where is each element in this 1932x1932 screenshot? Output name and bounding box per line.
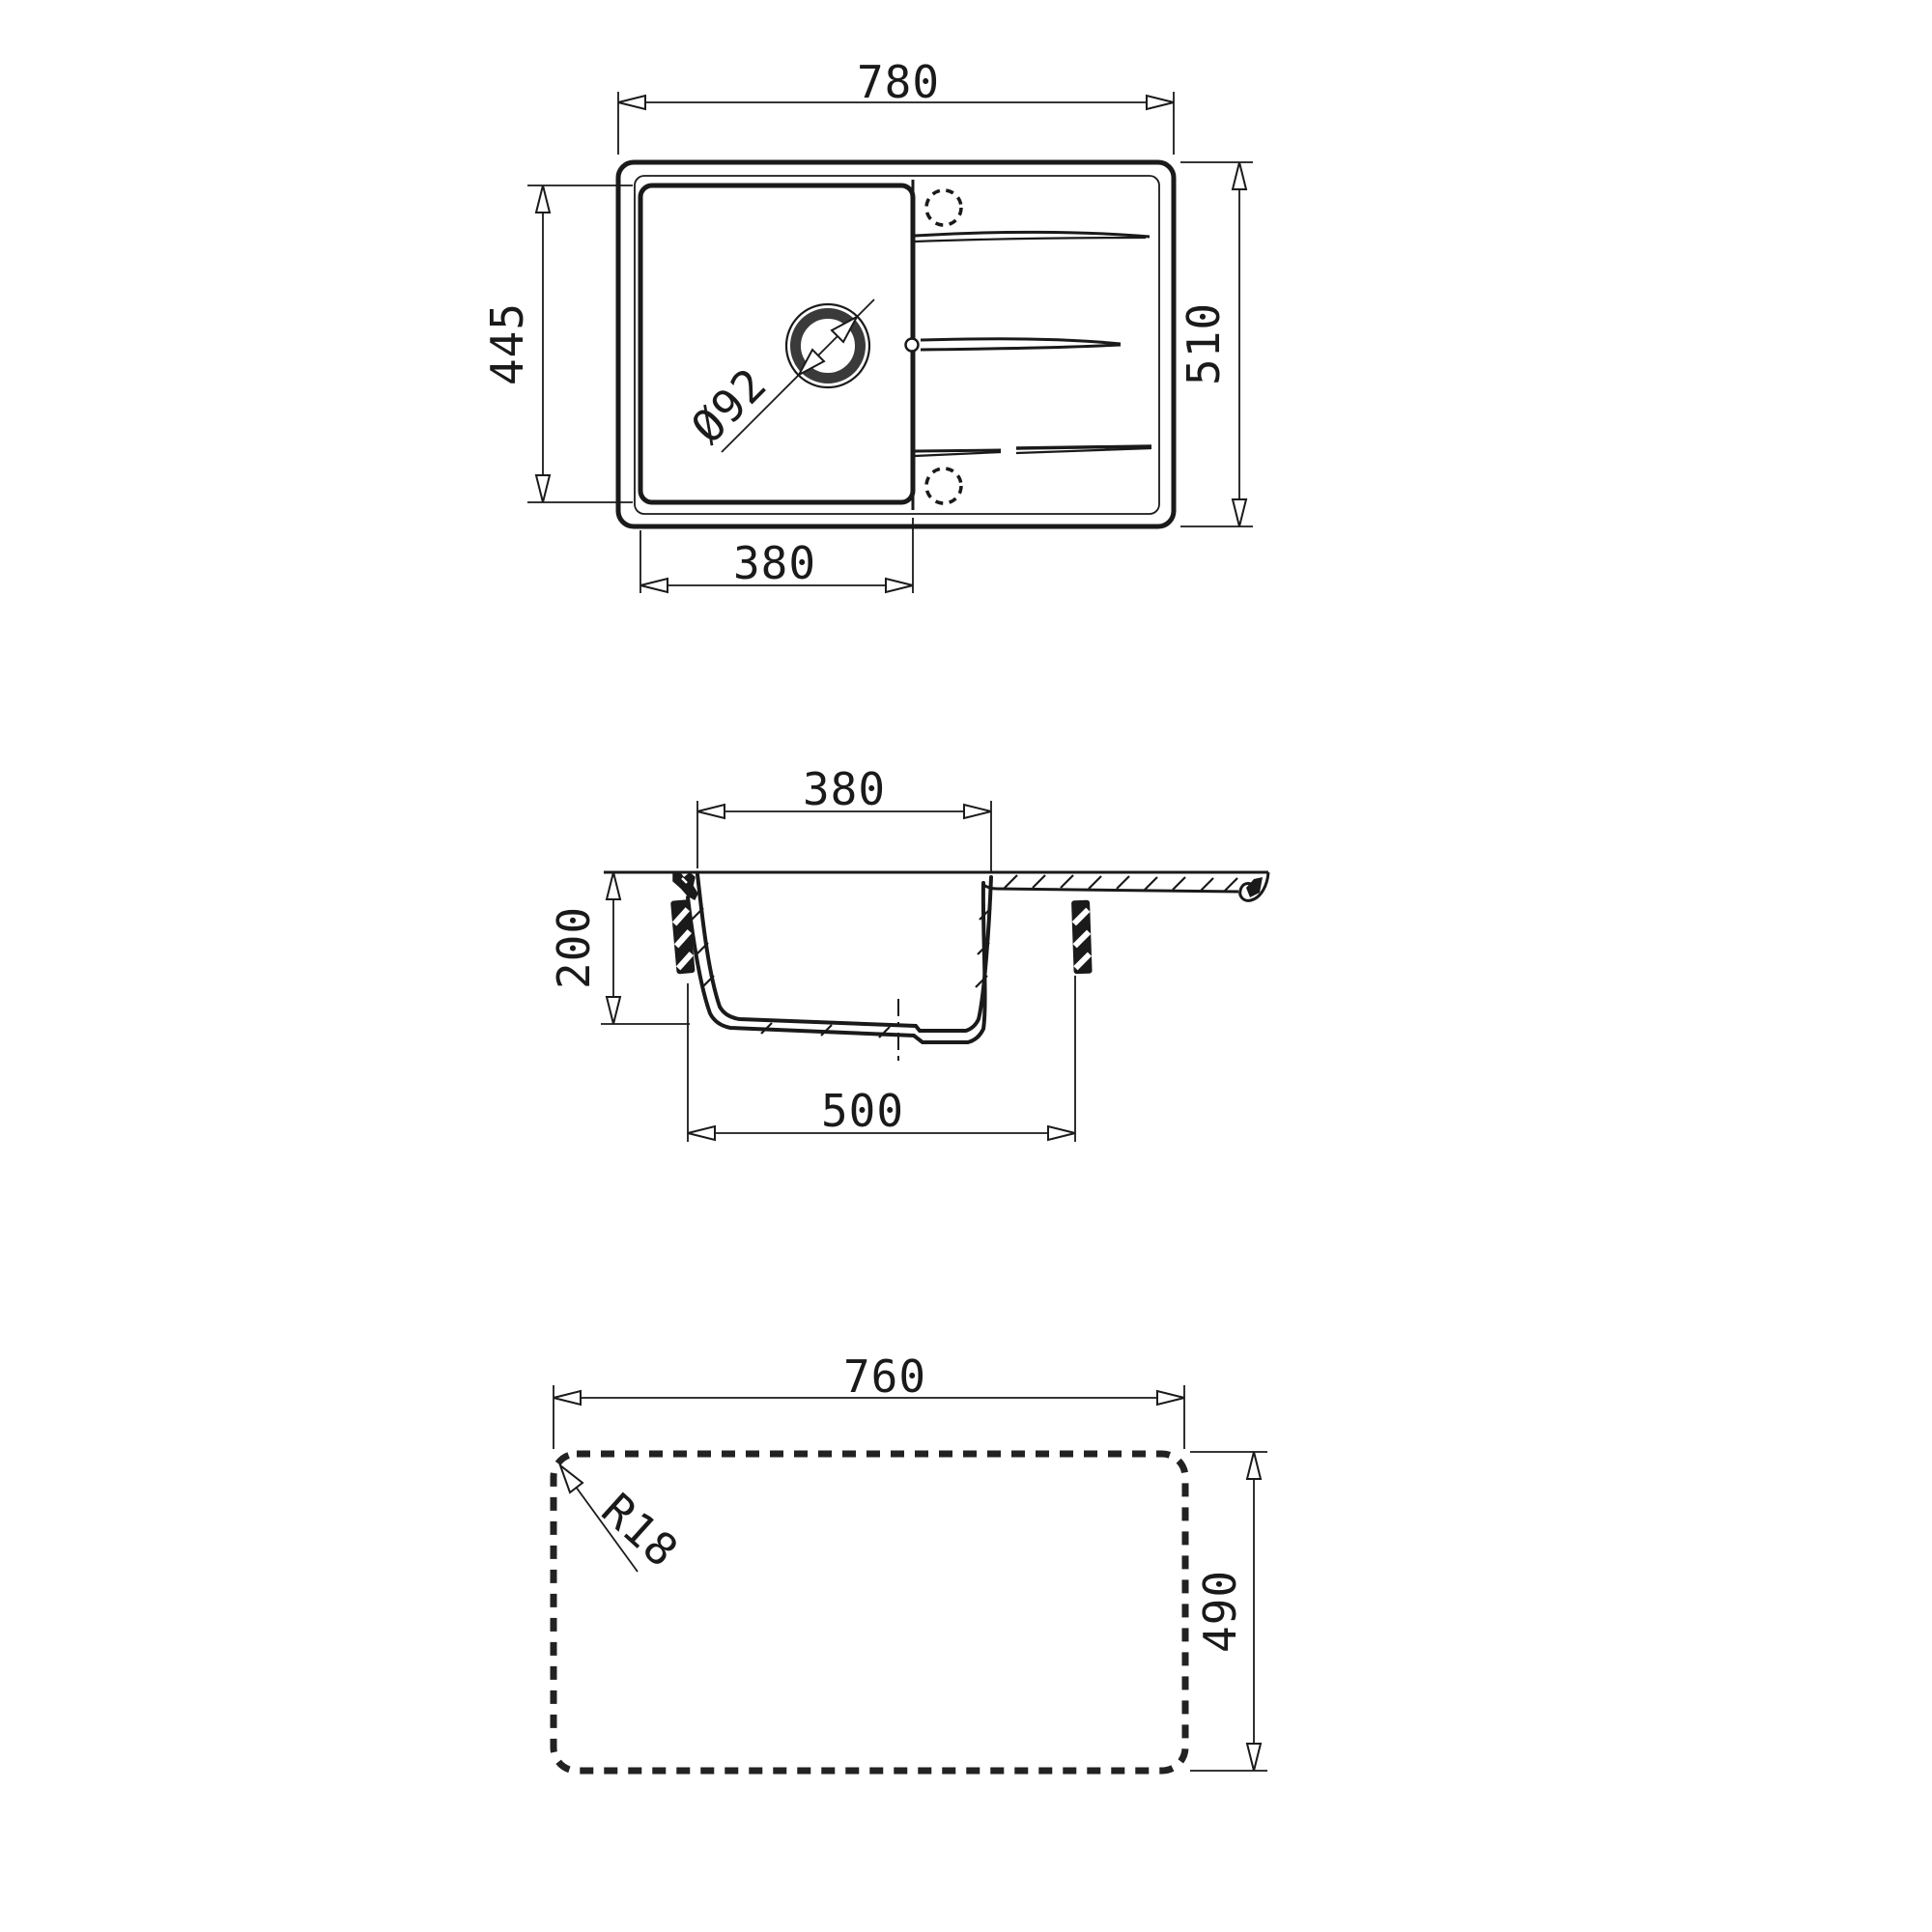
mounting-clip-right xyxy=(1071,900,1093,975)
bowl-width-label: 380 xyxy=(733,537,816,589)
sink-technical-drawing: Ø92 780 510 445 xyxy=(0,0,1932,1932)
drawing-canvas: Ø92 780 510 445 xyxy=(0,0,1932,1932)
overall-width-label: 780 xyxy=(857,56,940,108)
bowl-top-width-label: 380 xyxy=(803,763,886,815)
overall-depth-label: 510 xyxy=(1178,302,1230,385)
bowl-depth-label: 200 xyxy=(548,906,600,989)
bowl-bottom-width-label: 500 xyxy=(821,1085,904,1137)
groove-bottom-left xyxy=(915,450,1001,451)
background xyxy=(0,0,1932,1932)
cutout-width-label: 760 xyxy=(843,1350,926,1403)
cutout-depth-label: 490 xyxy=(1194,1570,1246,1653)
groove-middle-end-circle xyxy=(906,339,919,352)
bowl-length-label: 445 xyxy=(481,302,533,385)
